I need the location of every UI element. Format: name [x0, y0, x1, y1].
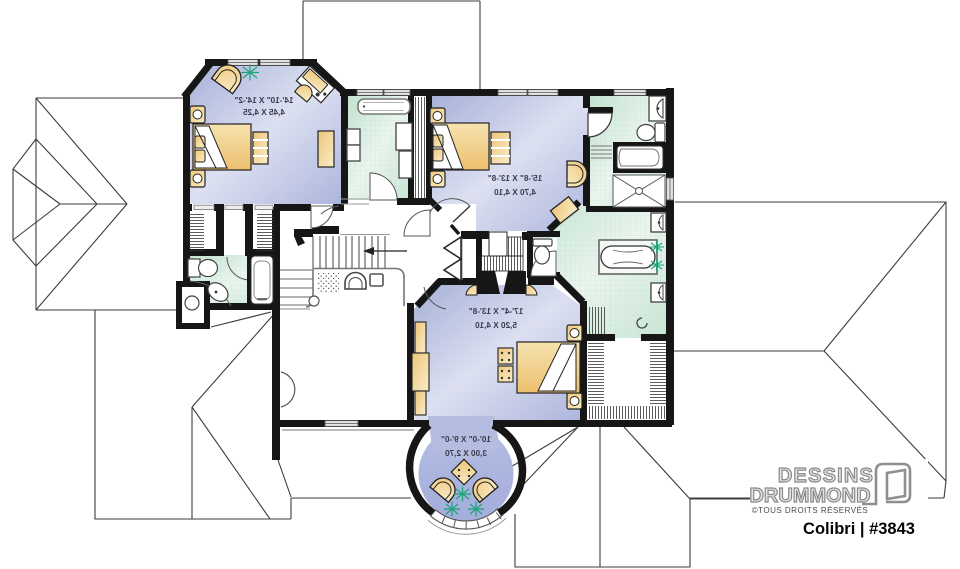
svg-text:5,20 X 4,10: 5,20 X 4,10: [475, 321, 517, 330]
svg-text:10'-0" X 9'-0": 10'-0" X 9'-0": [441, 435, 491, 444]
svg-text:DESSINS: DESSINS: [778, 465, 874, 487]
svg-text:©TOUS DROITS RÉSERVÉS: ©TOUS DROITS RÉSERVÉS: [752, 506, 869, 515]
svg-text:17'-4" X 13'-8": 17'-4" X 13'-8": [469, 307, 524, 316]
svg-text:3,00 X 2,70: 3,00 X 2,70: [445, 449, 487, 458]
svg-text:4,45 X 4,25: 4,45 X 4,25: [243, 108, 285, 117]
svg-text:DRUMMOND: DRUMMOND: [749, 485, 870, 507]
svg-text:Colibri | #3843: Colibri | #3843: [803, 520, 915, 538]
svg-text:15'-8" X 13'-8": 15'-8" X 13'-8": [488, 174, 543, 183]
svg-text:14'-10" X 14'-2": 14'-10" X 14'-2": [234, 96, 293, 105]
svg-text:4,70 X 4,10: 4,70 X 4,10: [494, 188, 536, 197]
